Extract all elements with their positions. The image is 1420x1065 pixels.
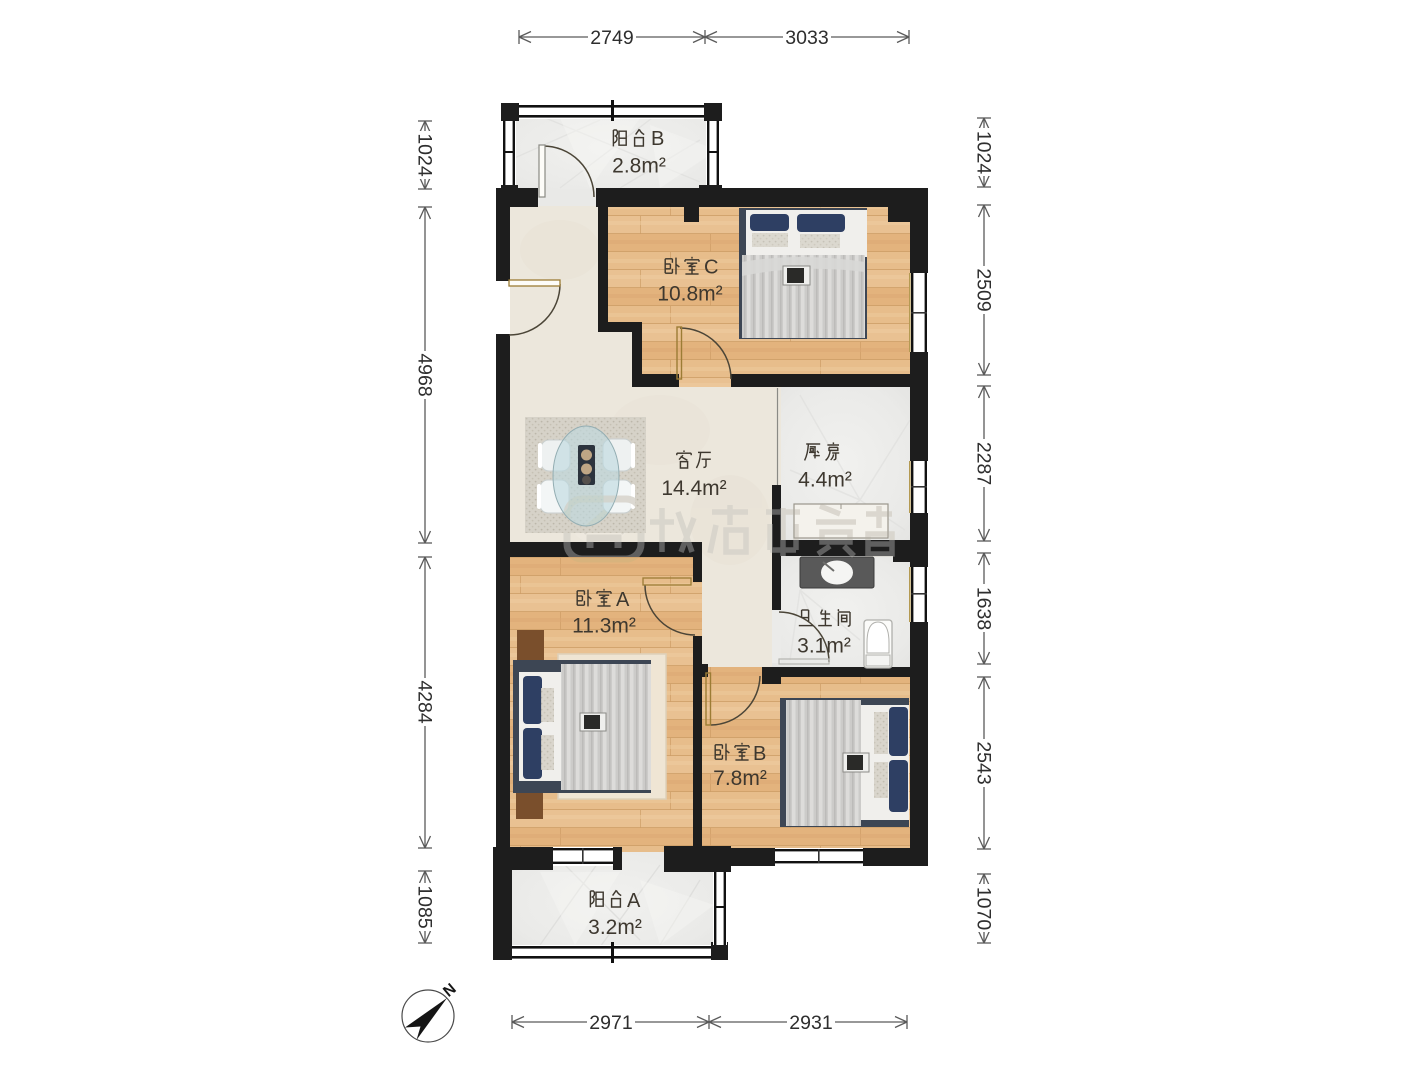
- svg-text:3033: 3033: [785, 27, 828, 49]
- svg-text:A: A: [627, 890, 641, 912]
- svg-text:B: B: [753, 743, 766, 765]
- svg-text:2.8m²: 2.8m²: [612, 155, 666, 178]
- svg-text:4968: 4968: [414, 353, 436, 396]
- svg-text:4284: 4284: [414, 680, 436, 724]
- svg-text:2287: 2287: [973, 442, 995, 485]
- svg-text:1024: 1024: [973, 131, 995, 175]
- svg-text:2509: 2509: [973, 268, 995, 311]
- svg-text:A: A: [616, 589, 630, 611]
- svg-text:B: B: [651, 128, 664, 150]
- svg-text:1085: 1085: [414, 885, 436, 929]
- svg-text:2931: 2931: [789, 1012, 832, 1034]
- svg-text:1070: 1070: [973, 887, 995, 931]
- svg-text:7.8m²: 7.8m²: [713, 767, 767, 790]
- svg-text:11.3m²: 11.3m²: [572, 615, 636, 638]
- svg-text:2543: 2543: [973, 741, 995, 784]
- svg-text:2749: 2749: [590, 27, 633, 49]
- svg-text:2971: 2971: [589, 1012, 632, 1034]
- svg-text:1638: 1638: [973, 587, 995, 630]
- svg-text:C: C: [704, 257, 718, 279]
- svg-text:10.8m²: 10.8m²: [657, 283, 722, 306]
- svg-text:3.2m²: 3.2m²: [588, 916, 642, 939]
- svg-text:1024: 1024: [414, 133, 436, 177]
- svg-text:4.4m²: 4.4m²: [798, 469, 852, 492]
- svg-text:3.1m²: 3.1m²: [797, 635, 851, 658]
- svg-text:14.4m²: 14.4m²: [661, 477, 726, 500]
